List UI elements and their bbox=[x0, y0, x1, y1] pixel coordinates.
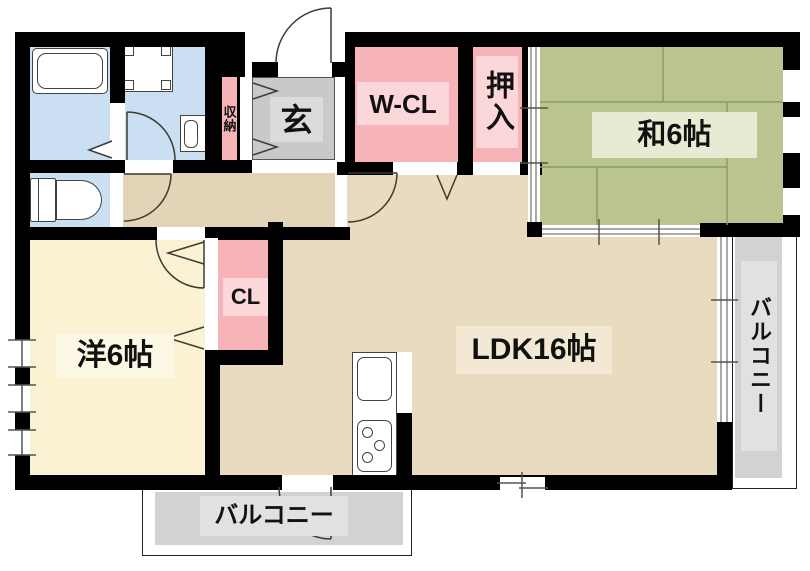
balcony-right-label: バルコニー bbox=[741, 261, 777, 451]
toilet-tank-line bbox=[38, 179, 39, 221]
wall bbox=[173, 160, 252, 173]
left-window bbox=[15, 385, 30, 412]
entrance-threshold bbox=[278, 62, 332, 77]
kitchen-sink bbox=[357, 357, 392, 401]
wall bbox=[15, 32, 237, 47]
stove-burner bbox=[362, 452, 373, 463]
entrance-step bbox=[252, 160, 337, 173]
stove-burner bbox=[362, 427, 373, 438]
vanity-bowl bbox=[184, 120, 198, 148]
japanese-room-window bbox=[783, 117, 800, 153]
stove-burner bbox=[374, 440, 385, 451]
ldk-sliding-window bbox=[717, 237, 732, 422]
entrance-door-arc bbox=[276, 8, 331, 63]
closet-fold-door-strip bbox=[205, 238, 218, 350]
wall bbox=[15, 32, 30, 490]
balcony-bottom-label: バルコニー bbox=[200, 496, 348, 536]
toilet bbox=[30, 178, 56, 222]
ldk-floor-lower bbox=[220, 365, 717, 475]
washer-corner bbox=[124, 46, 134, 56]
japanese-room-left-sliding-track bbox=[528, 47, 540, 222]
ldk-door-opening bbox=[335, 175, 347, 227]
ldk-label: LDK16帖 bbox=[456, 326, 612, 374]
wall bbox=[700, 223, 800, 237]
hallway-floor bbox=[123, 173, 335, 227]
floor-plan: 和6帖 LDK16帖 洋6帖 W-CL 押入 CL 玄 収納 バルコニー バルコ… bbox=[0, 0, 810, 571]
balcony-door-opening bbox=[282, 475, 333, 490]
wall bbox=[15, 227, 157, 240]
entrance-agari-strip bbox=[240, 77, 252, 160]
western-room-door-opening bbox=[157, 227, 205, 240]
toilet-bowl bbox=[56, 180, 102, 220]
wall bbox=[15, 475, 732, 490]
washer-corner bbox=[161, 46, 171, 56]
japanese-room-window bbox=[783, 188, 800, 215]
wall bbox=[337, 162, 393, 175]
japanese-room-window bbox=[783, 70, 800, 102]
wall bbox=[252, 62, 278, 77]
wall bbox=[345, 32, 800, 47]
wall bbox=[458, 47, 473, 162]
washer-corner bbox=[161, 80, 171, 90]
western-room-label: 洋6帖 bbox=[56, 334, 174, 378]
japanese-room-bottom-sliding-track bbox=[542, 225, 700, 237]
bottom-window bbox=[500, 477, 545, 491]
wcl-label: W-CL bbox=[357, 82, 449, 125]
japanese-room-label: 和6帖 bbox=[592, 112, 757, 158]
oshiire-label: 押入 bbox=[476, 56, 518, 148]
wall bbox=[15, 160, 125, 173]
bathroom-door-opening bbox=[110, 103, 125, 160]
wall bbox=[397, 413, 412, 480]
ldk-corridor-floor bbox=[347, 175, 528, 240]
oshiire-opening bbox=[473, 162, 520, 175]
entrance-label: 玄 bbox=[270, 97, 323, 142]
wall bbox=[268, 222, 283, 365]
toilet-door-opening bbox=[110, 174, 123, 227]
closet-label: CL bbox=[223, 278, 268, 316]
wall bbox=[205, 365, 220, 475]
kitchen-counter-pass bbox=[397, 352, 412, 413]
wall bbox=[345, 47, 355, 162]
washroom-door-opening bbox=[125, 160, 173, 173]
wall bbox=[332, 62, 345, 77]
washer-corner bbox=[124, 80, 134, 90]
wall bbox=[457, 162, 473, 175]
left-window bbox=[15, 340, 30, 367]
wall bbox=[222, 32, 245, 77]
storage-label: 収納 bbox=[220, 88, 238, 150]
left-window bbox=[15, 430, 30, 455]
wall bbox=[527, 222, 542, 237]
wcl-door-opening bbox=[393, 162, 457, 175]
entrance-side-strip bbox=[335, 77, 345, 160]
wall bbox=[205, 350, 283, 365]
bathtub-inner bbox=[37, 53, 103, 89]
